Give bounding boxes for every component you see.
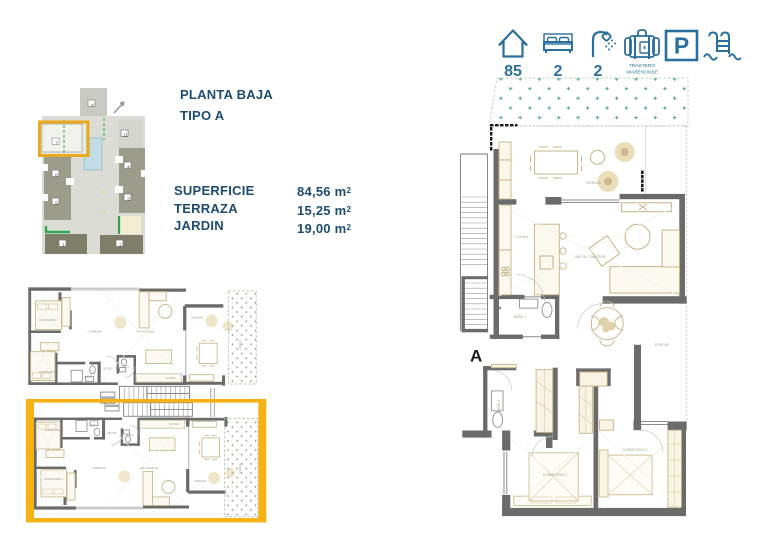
- svg-text:××: ××: [100, 190, 106, 196]
- svg-text:3: 3: [127, 197, 130, 203]
- svg-text:A: A: [470, 347, 482, 366]
- svg-text:TRASTERO: TRASTERO: [629, 63, 655, 69]
- svg-text:DORMITORIO 2: DORMITORIO 2: [45, 428, 65, 432]
- svg-text:RECIB.: RECIB.: [108, 431, 117, 435]
- svg-text:PORCHE: PORCHE: [655, 343, 670, 347]
- svg-text:2: 2: [119, 243, 122, 249]
- svg-text:7: 7: [55, 141, 58, 147]
- svg-text:9: 9: [55, 201, 58, 207]
- svg-text:ASEO: ASEO: [126, 433, 133, 437]
- svg-text:TERRAZA: TERRAZA: [585, 181, 602, 185]
- svg-text:DORMITORIO 1: DORMITORIO 1: [543, 473, 568, 477]
- svg-text:BAÑO: BAÑO: [89, 422, 96, 427]
- svg-text:COCINA: COCINA: [515, 235, 529, 239]
- svg-text:DORMITORIO 1: DORMITORIO 1: [45, 477, 65, 481]
- svg-text:BAÑO 2: BAÑO 2: [496, 400, 501, 413]
- svg-text:SALON-ESTAR: SALON-ESTAR: [140, 466, 158, 470]
- svg-text:COMEDOR: COMEDOR: [92, 466, 106, 470]
- svg-text:COCINA: COCINA: [169, 422, 179, 426]
- svg-text:1: 1: [62, 243, 65, 249]
- svg-text:P: P: [674, 33, 689, 59]
- svg-text:××: ××: [100, 210, 106, 216]
- svg-text:8: 8: [55, 173, 58, 179]
- svg-text:11: 11: [123, 133, 128, 139]
- svg-text:4: 4: [91, 103, 94, 109]
- svg-text:BAÑO 1: BAÑO 1: [514, 314, 527, 319]
- svg-text:TERRAZA: TERRAZA: [194, 479, 206, 483]
- svg-text:WAREHOUSE: WAREHOUSE: [626, 70, 658, 76]
- svg-text:SALON-COMEDOR: SALON-COMEDOR: [575, 255, 606, 259]
- svg-text:4: 4: [127, 165, 130, 171]
- svg-text:DORMITORIO 2: DORMITORIO 2: [623, 448, 648, 452]
